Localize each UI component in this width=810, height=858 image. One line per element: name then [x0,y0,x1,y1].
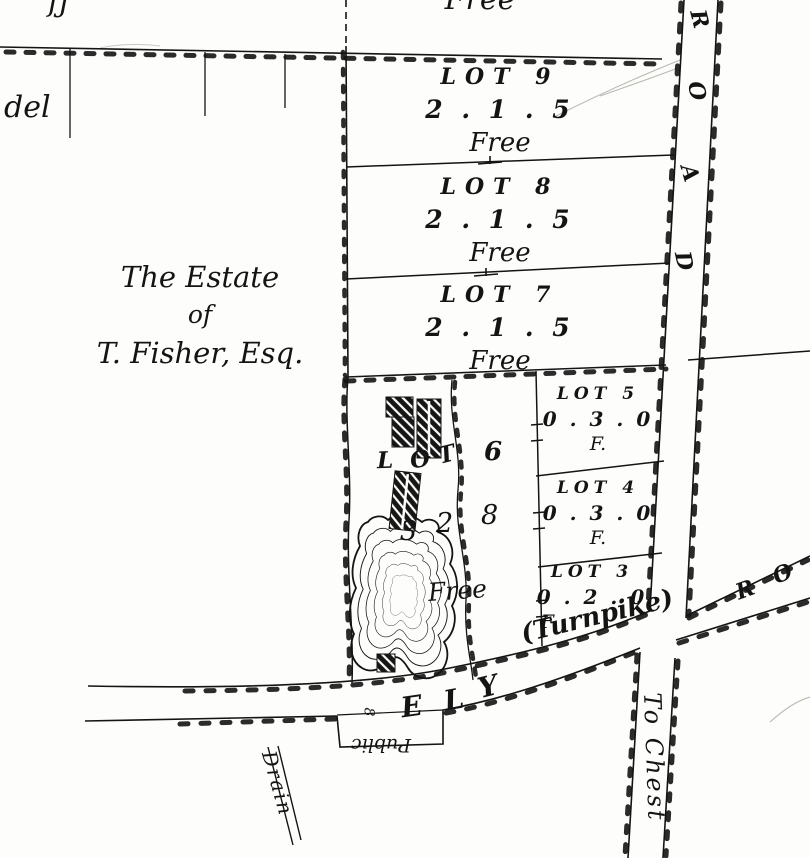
estate-title: The Estate of T. Fisher, Esq. [60,256,340,374]
cropped-text-fragment: fj [48,0,68,19]
lot6-internal-hedge [451,380,476,680]
lot-6-area-digit-2: 2 [436,508,453,539]
lot-6-number: 6 [484,437,502,467]
ely-road-letter-e: E [399,689,425,725]
lot-5-name: LOT 5 [537,382,659,406]
lot-6-area-digit-1: 3 [400,516,417,547]
lot-9-name: LOT 9 [350,62,650,92]
lot-6-tenure: Free [427,574,488,607]
estate-survey-map: fj Free del The Estate of T. Fisher, Esq… [0,0,810,858]
lot-4-name: LOT 4 [537,476,659,500]
lot-6-letter-l: L [377,447,394,475]
lot-4-parcel: LOT 4 0 . 3 . 0 F. [537,476,659,550]
lot-5-area: 0 . 3 . 0 [537,406,659,433]
lot-8-tenure: Free [350,238,650,268]
lot-7-area: 2 . 1 . 5 [350,310,650,346]
estate-title-line2: of [60,298,340,332]
lot-8-area: 2 . 1 . 5 [350,202,650,238]
lot-7-tenure: Free [350,346,650,376]
adjacent-field-label: del [4,90,51,125]
lot-9-parcel: LOT 9 2 . 1 . 5 Free [350,62,650,158]
lot-9-area: 2 . 1 . 5 [350,92,650,128]
lot-9-tenure: Free [350,128,650,158]
estate-title-line3: T. Fisher, Esq. [60,332,340,374]
lot-8-name: LOT 8 [350,172,650,202]
lot-7-name: LOT 7 [350,280,650,310]
south-road-destination-label: To Chest [638,692,671,823]
lot-4-area: 0 . 3 . 0 [537,500,659,527]
lot-3-name: LOT 3 [533,560,651,584]
lot-6-area-digit-3: 8 [481,500,498,531]
road-width-annotation: 8 [360,708,376,717]
estate-title-line1: The Estate [60,256,340,298]
lot-5-parcel: LOT 5 0 . 3 . 0 F. [537,382,659,456]
lot-7-parcel: LOT 7 2 . 1 . 5 Free [350,280,650,376]
public-drain-label-word1: Public [336,734,426,756]
lot-4-tenure: F. [537,527,659,550]
lot-5-tenure: F. [537,433,659,456]
lot-8-parcel: LOT 8 2 . 1 . 5 Free [350,172,650,268]
cropped-free-label: Free [420,0,540,17]
